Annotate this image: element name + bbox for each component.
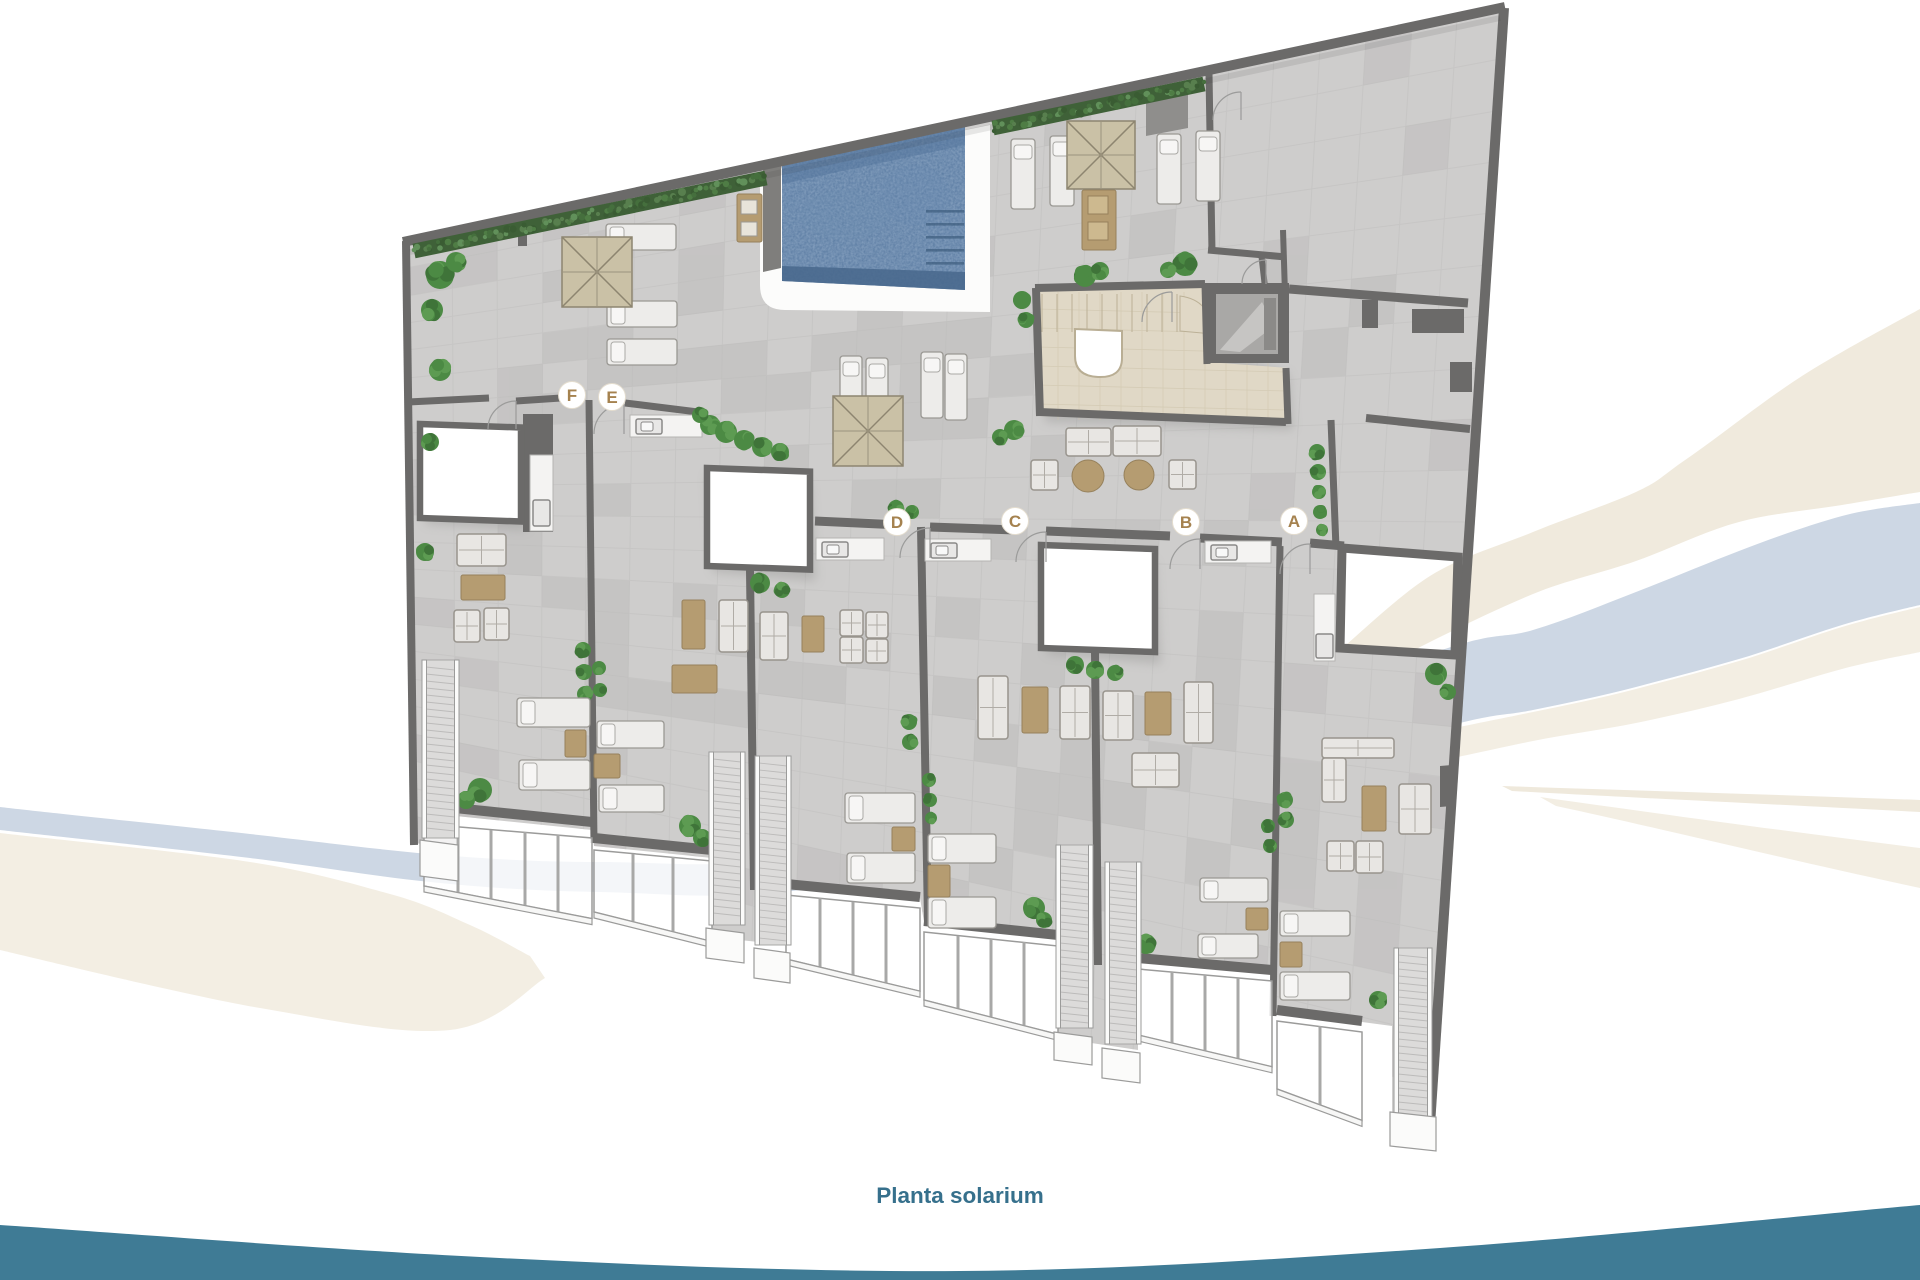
svg-text:C: C: [1009, 512, 1021, 531]
svg-text:B: B: [1180, 513, 1192, 532]
svg-text:E: E: [606, 388, 617, 407]
svg-text:D: D: [891, 513, 903, 532]
svg-text:F: F: [567, 386, 577, 405]
svg-text:A: A: [1288, 512, 1300, 531]
svg-text:Planta solarium: Planta solarium: [876, 1183, 1044, 1208]
